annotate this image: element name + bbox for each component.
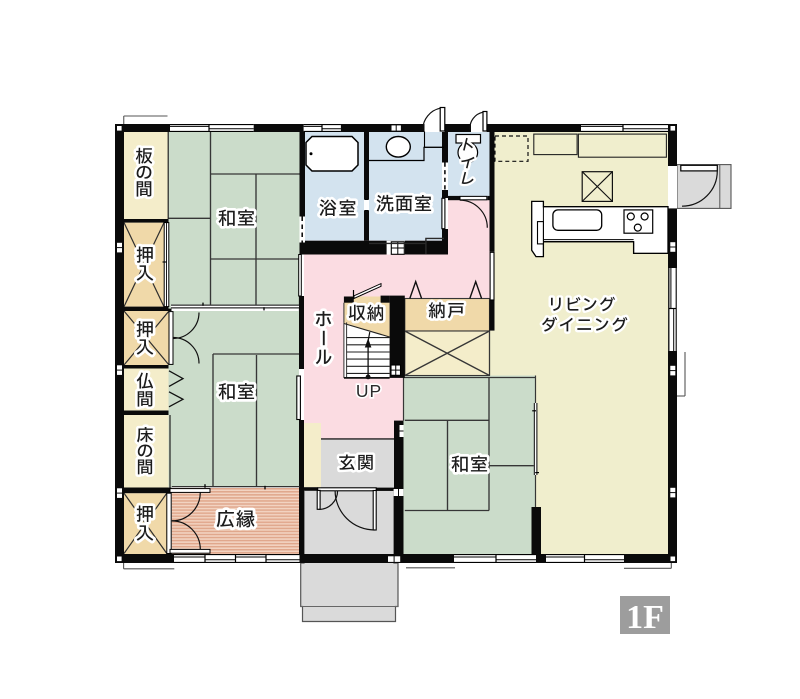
svg-text:UP: UP	[356, 381, 382, 401]
svg-text:1F: 1F	[626, 599, 664, 636]
